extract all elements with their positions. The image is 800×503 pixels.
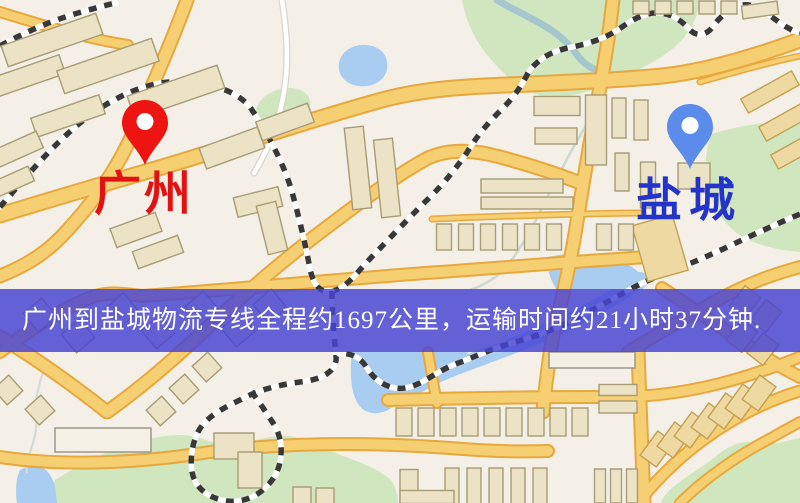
destination-city-label: 盐城 (636, 178, 742, 224)
route-info-banner: 广州到盐城物流专线全程约1697公里，运输时间约21小时37分钟. (0, 289, 800, 352)
origin-city-label: 广州 (94, 172, 194, 219)
map-view: 广州 盐城 广州到盐城物流专线全程约1697公里，运输时间约21小时37分钟. (0, 0, 800, 503)
map-graphic (0, 0, 800, 503)
